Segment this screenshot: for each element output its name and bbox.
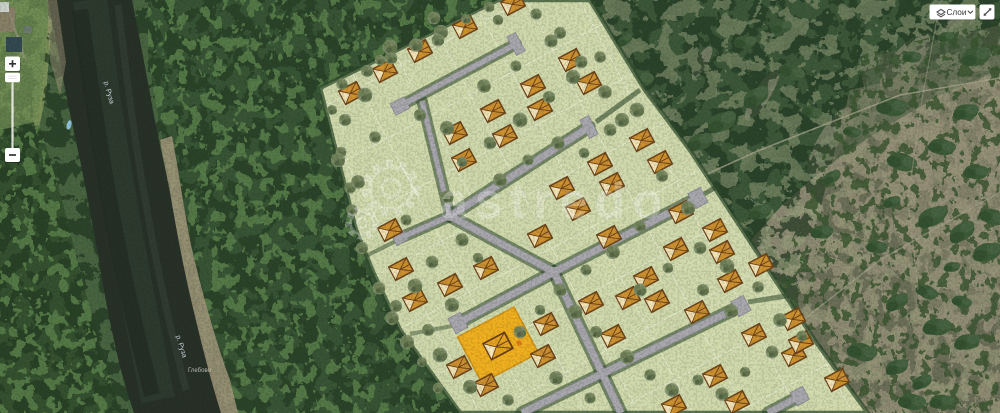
svg-text:Слои: Слои: [947, 8, 967, 17]
